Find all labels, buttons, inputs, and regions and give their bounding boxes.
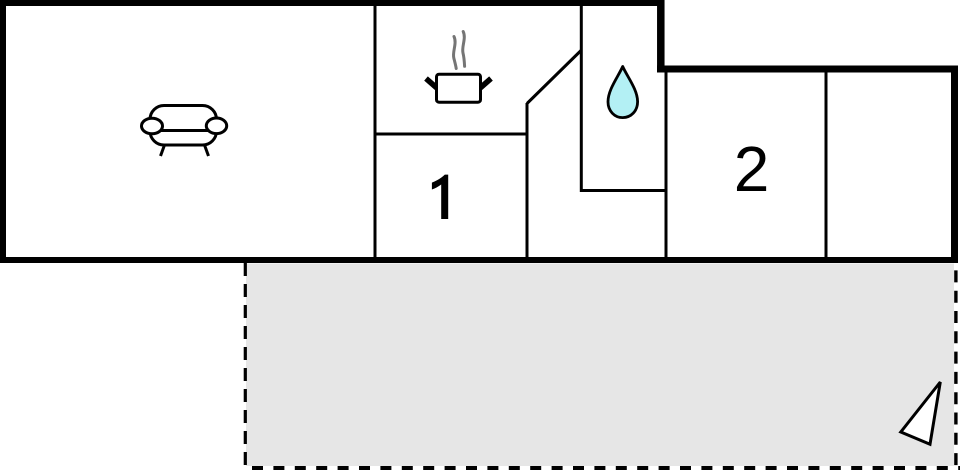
svg-text:2: 2 <box>734 133 770 205</box>
